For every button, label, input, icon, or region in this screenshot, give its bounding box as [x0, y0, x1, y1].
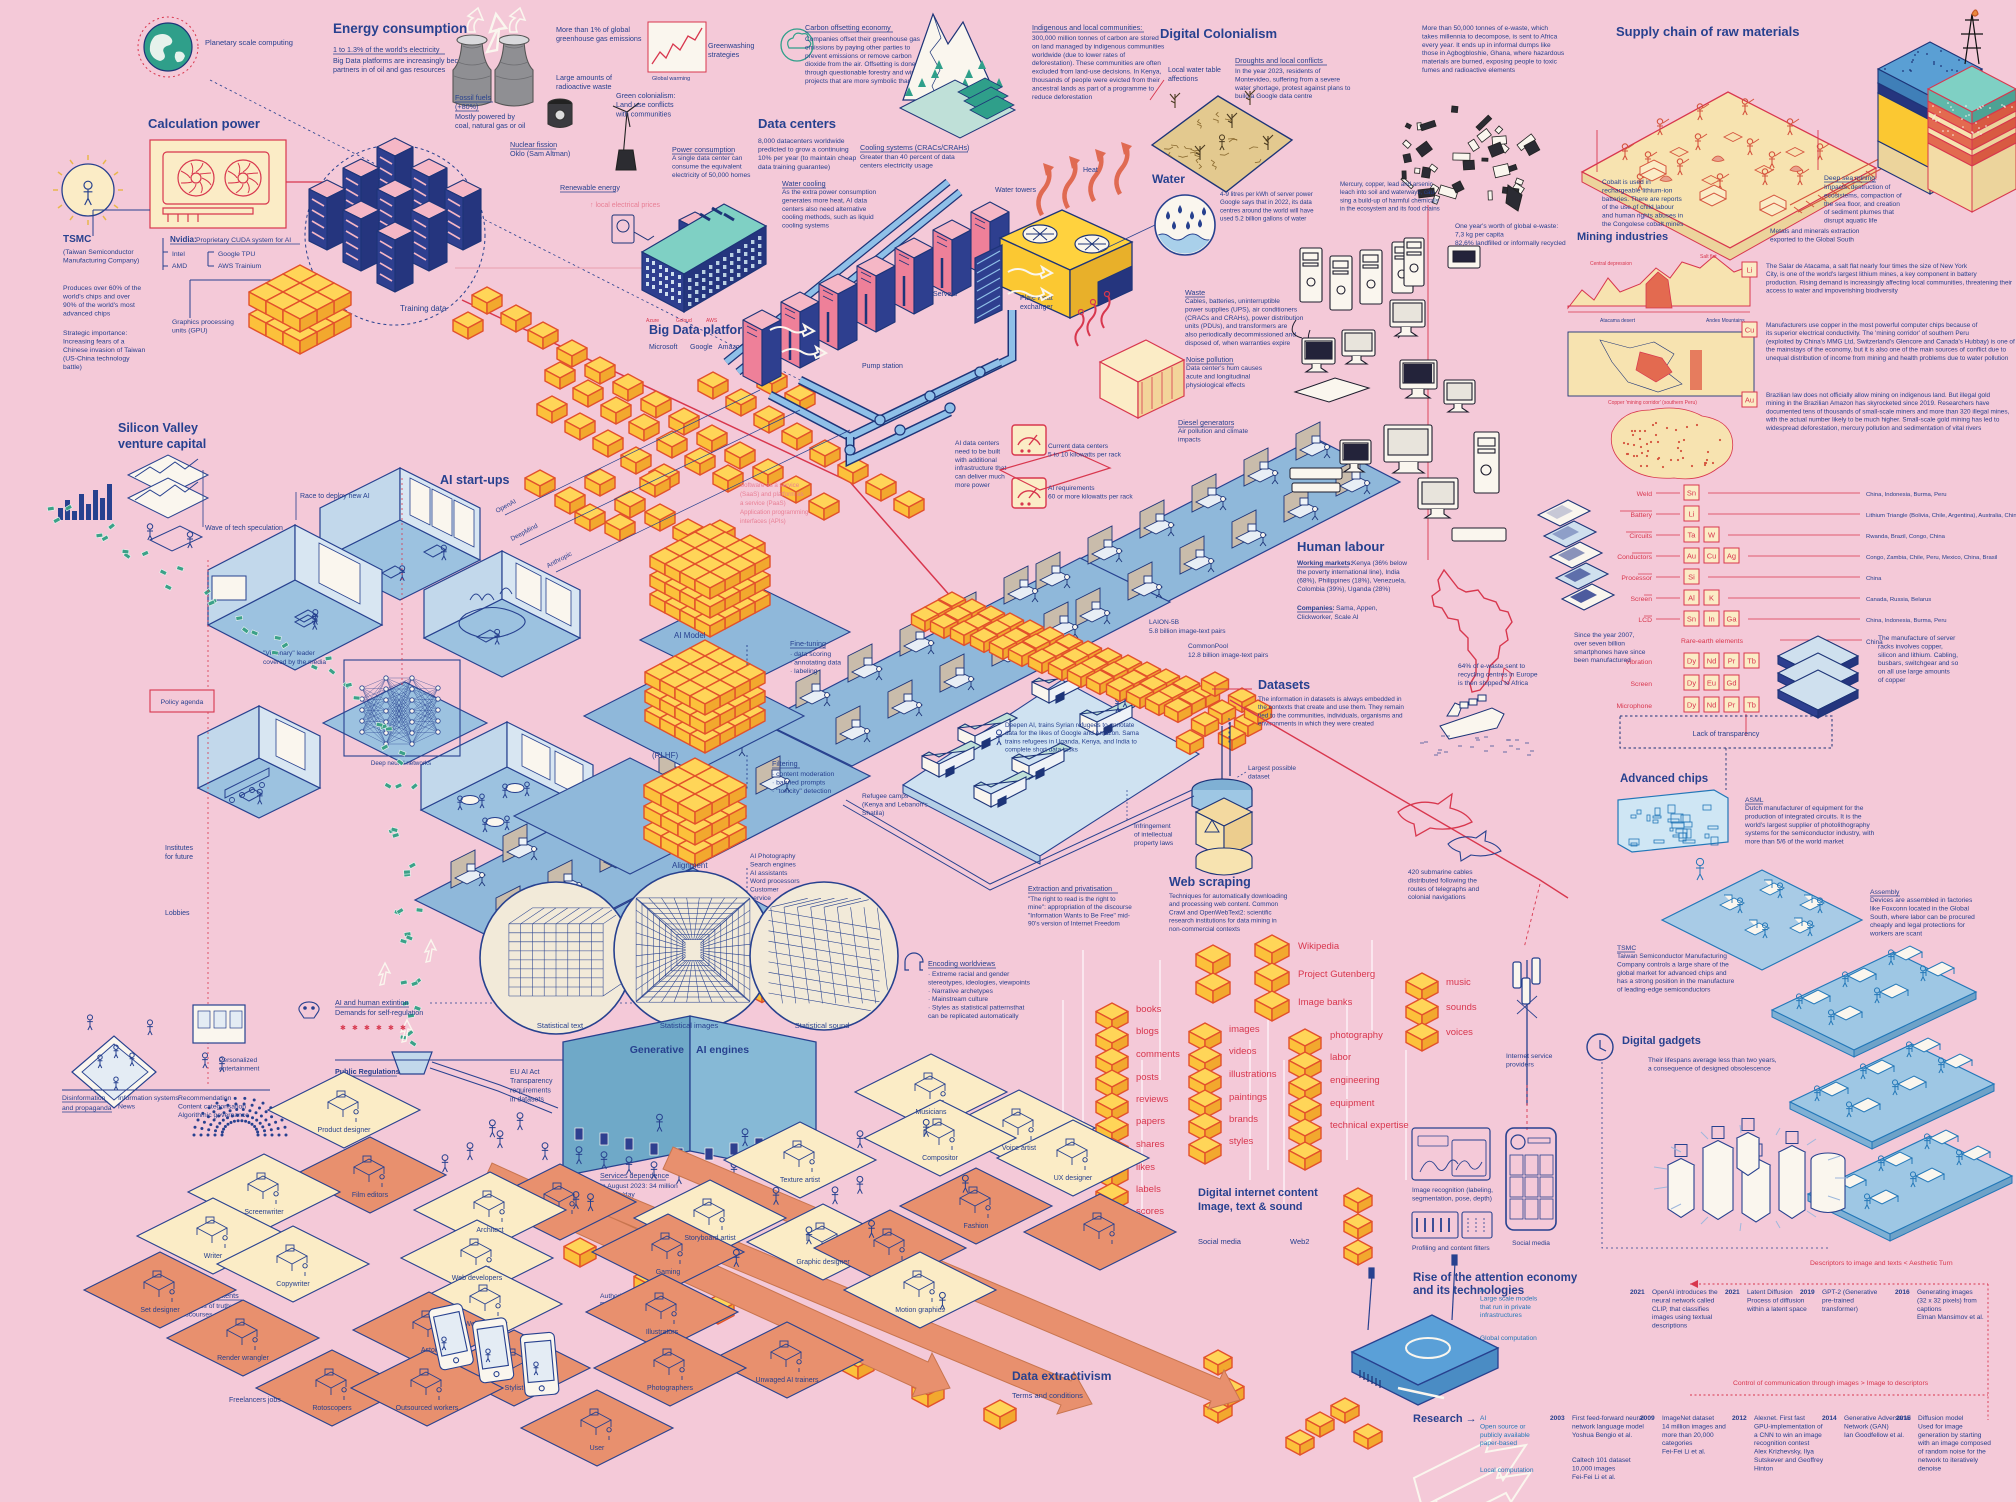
svg-text:non-commercial contexts: non-commercial contexts [1169, 926, 1240, 933]
svg-text:Mining industries: Mining industries [1577, 231, 1668, 243]
svg-text:Sn: Sn [1687, 489, 1696, 498]
svg-text:Musicians: Musicians [915, 1109, 947, 1116]
svg-text:City, is one of the world's la: City, is one of the world's largest lith… [1766, 271, 1977, 278]
svg-text:Image, text & sound: Image, text & sound [1198, 1201, 1303, 1213]
svg-text:Social media: Social media [1512, 1240, 1550, 1247]
svg-text:data training guarantee): data training guarantee) [758, 164, 830, 171]
svg-text:disrupt aquatic life: disrupt aquatic life [1824, 218, 1877, 225]
svg-text:covered by the media: covered by the media [263, 659, 326, 666]
svg-text:a CNN to win an image: a CNN to win an image [1754, 1432, 1822, 1439]
svg-text:Elman Mansimov et al.: Elman Mansimov et al. [1917, 1314, 1984, 1321]
svg-text:world's chips and over: world's chips and over [62, 294, 131, 301]
svg-text:paintings: paintings [1229, 1092, 1267, 1103]
svg-text:of copper: of copper [1878, 677, 1906, 684]
svg-text:✱: ✱ [376, 1024, 382, 1032]
svg-text:8,000 datacenters worldwide: 8,000 datacenters worldwide [758, 138, 845, 145]
svg-text:cooling systems: cooling systems [782, 223, 830, 230]
svg-text:with additional: with additional [954, 457, 997, 464]
svg-text:Render wrangler: Render wrangler [217, 1355, 269, 1362]
svg-text:Land use conflicts: Land use conflicts [616, 100, 674, 109]
svg-text:production. Rising demand is i: production. Rising demand is increasingl… [1766, 279, 2013, 286]
svg-text:Largest possible: Largest possible [1248, 765, 1296, 772]
svg-text:Refugee camps: Refugee camps [862, 793, 909, 800]
svg-text:and propaganda: and propaganda [62, 1105, 112, 1112]
svg-text:Compositor: Compositor [922, 1155, 958, 1162]
svg-text:✱: ✱ [340, 1024, 346, 1032]
svg-text:can deliver much: can deliver much [955, 474, 1005, 481]
svg-text:2019: 2019 [1800, 1289, 1815, 1296]
svg-text:posts: posts [1136, 1072, 1159, 1083]
svg-text:network to iteratively: network to iteratively [1918, 1457, 1979, 1464]
svg-text:Web developers: Web developers [452, 1275, 503, 1282]
svg-text:every year. It ends up in info: every year. It ends up in informal dumps… [1422, 42, 1551, 49]
svg-text:Recommendation: Recommendation [178, 1095, 231, 1102]
svg-text:China, Indonesia, Burma, Peru: China, Indonesia, Burma, Peru [1866, 492, 1947, 498]
svg-text:that run in private: that run in private [1480, 1304, 1531, 1311]
svg-text:Nuclear fission: Nuclear fission [510, 140, 557, 149]
svg-text:K: K [1709, 594, 1714, 603]
svg-text:Nd: Nd [1707, 701, 1717, 710]
svg-text:Techniques for automatically d: Techniques for automatically downloading [1169, 893, 1288, 900]
svg-text:Image recognition (labeling,: Image recognition (labeling, [1412, 1187, 1493, 1194]
svg-text:Rare-earth elements: Rare-earth elements [1681, 638, 1744, 645]
svg-text:Google TPU: Google TPU [218, 251, 255, 258]
svg-text:(Kenya and Lebanon's: (Kenya and Lebanon's [862, 801, 928, 808]
svg-text:Terms and conditions: Terms and conditions [1012, 1391, 1083, 1400]
svg-text:64% of e-waste sent to: 64% of e-waste sent to [1458, 663, 1525, 670]
svg-text:✱: ✱ [352, 1024, 358, 1032]
svg-text:(exploited by China's MMG Ltd,: (exploited by China's MMG Ltd, Switzerla… [1766, 338, 2015, 345]
svg-text:silicon and lithium. Cabling,: silicon and lithium. Cabling, [1878, 652, 1958, 659]
svg-text:Companies offset their greenho: Companies offset their greenhouse gas [805, 36, 921, 43]
svg-text:Alex Krizhevsky, Ilya: Alex Krizhevsky, Ilya [1754, 1449, 1814, 1456]
svg-text:4-9 litres per kWh of server p: 4-9 litres per kWh of server power [1220, 191, 1313, 198]
svg-text:through questionable forestry: through questionable forestry and wind [805, 70, 919, 77]
svg-text:Web scraping: Web scraping [1169, 875, 1251, 889]
svg-text:battle): battle) [63, 364, 82, 371]
svg-text:centers electricity usage: centers electricity usage [860, 163, 933, 170]
svg-text:· banned prompts: · banned prompts [772, 780, 826, 787]
svg-text:Set designer: Set designer [140, 1307, 180, 1314]
svg-text:transformer): transformer) [1822, 1306, 1858, 1313]
svg-text:Fei-Fei Li et al.: Fei-Fei Li et al. [1662, 1449, 1706, 1456]
svg-text:South, where labor can be proc: South, where labor can be procured [1870, 914, 1975, 921]
svg-text:on all use large amounts: on all use large amounts [1878, 669, 1951, 676]
svg-text:has a strong position in the m: has a strong position in the manufacture [1617, 978, 1735, 985]
svg-text:descriptions: descriptions [1652, 1323, 1688, 1330]
svg-text:2003: 2003 [1550, 1415, 1565, 1422]
svg-text:prevent emissions or remove ca: prevent emissions or remove carbon [805, 53, 912, 60]
svg-text:stereotypes, ideologies, viewp: stereotypes, ideologies, viewpoints [928, 979, 1031, 986]
svg-text:access to water and impoverish: access to water and impoverishing biodiv… [1766, 288, 1899, 295]
svg-text:Screenwriter: Screenwriter [244, 1209, 284, 1216]
svg-text:Open source or: Open source or [1480, 1423, 1526, 1430]
svg-text:power supplies (UPS), air cond: power supplies (UPS), air conditioners [1185, 306, 1298, 313]
svg-text:in datasets: in datasets [510, 1097, 544, 1104]
svg-text:Greater than 40 percent of dat: Greater than 40 percent of data [860, 154, 955, 161]
svg-text:GPT-2 (Generative: GPT-2 (Generative [1822, 1289, 1878, 1296]
svg-text:"The right to read is the righ: "The right to read is the right to [1028, 896, 1116, 903]
svg-text:batteries. There are reports: batteries. There are reports [1602, 196, 1682, 203]
svg-text:Proprietary CUDA system for AI: Proprietary CUDA system for AI [196, 237, 291, 244]
svg-text:Web2: Web2 [1290, 1237, 1309, 1246]
svg-text:leach into soil and waterways,: leach into soil and waterways, cau- [1340, 189, 1436, 196]
svg-text:Texture artist: Texture artist [780, 1177, 820, 1184]
svg-text:Oklo (Sam Altman): Oklo (Sam Altman) [510, 149, 570, 158]
svg-text:fumes and radioactive elements: fumes and radioactive elements [1422, 67, 1516, 74]
svg-text:Central depression: Central depression [1590, 261, 1632, 267]
svg-text:Writer: Writer [204, 1253, 223, 1260]
svg-text:Calculation power: Calculation power [148, 116, 260, 131]
svg-text:been manufactured: been manufactured [1574, 657, 1631, 664]
svg-text:· Styles as statistical patter: · Styles as statistical patternsthat [928, 1005, 1025, 1012]
svg-text:Crawl and OpenWebText2: scient: Crawl and OpenWebText2: scientific [1169, 909, 1272, 916]
svg-text:generation by starting: generation by starting [1918, 1432, 1982, 1439]
svg-text:Heat: Heat [1083, 167, 1098, 174]
svg-text:thousands of people were evict: thousands of people were evicted from th… [1032, 77, 1161, 84]
svg-text:Sutskever and Geoffrey: Sutskever and Geoffrey [1754, 1457, 1824, 1464]
svg-text:providers: providers [1506, 1062, 1535, 1069]
svg-text:Pr: Pr [1728, 701, 1736, 710]
svg-text:Research →: Research → [1413, 1413, 1477, 1425]
svg-text:CommonPool: CommonPool [1188, 643, 1228, 650]
svg-text:Caltech 101 dataset: Caltech 101 dataset [1572, 1457, 1631, 1464]
svg-text:90's version of Internet Freed: 90's version of Internet Freedom [1028, 921, 1120, 928]
svg-text:Cooling systems (CRACs/CRAHs): Cooling systems (CRACs/CRAHs) [860, 143, 969, 152]
svg-text:Ag: Ag [1727, 552, 1736, 561]
svg-text:dataset: dataset [1248, 773, 1270, 780]
svg-text:Green colonialism:: Green colonialism: [616, 91, 676, 100]
svg-text:infrastructure that: infrastructure that [955, 465, 1006, 472]
svg-text:Deepen AI, trains Syrian refug: Deepen AI, trains Syrian refugees to ann… [1005, 722, 1135, 729]
svg-text:more than 20,000: more than 20,000 [1662, 1432, 1714, 1439]
svg-text:a service (PaaS): a service (PaaS) [740, 500, 786, 507]
svg-text:production of integrated circu: production of integrated circuits. It is… [1745, 813, 1862, 820]
svg-text:Institutes: Institutes [165, 845, 194, 852]
svg-text:Power consumption: Power consumption [672, 145, 735, 154]
svg-text:Photographers: Photographers [647, 1385, 693, 1392]
svg-text:ASML: ASML [1745, 797, 1764, 804]
svg-text:brands: brands [1229, 1114, 1258, 1125]
svg-text:Fei-Fei Li et al.: Fei-Fei Li et al. [1572, 1474, 1616, 1481]
svg-text:More than 50,000 tonnes of e-w: More than 50,000 tonnes of e-waste, whic… [1422, 25, 1548, 32]
svg-text:Motion graphics: Motion graphics [895, 1307, 945, 1314]
svg-text:Statistical images: Statistical images [660, 1021, 719, 1030]
svg-text:2015: 2015 [1896, 1415, 1911, 1422]
svg-text:Assembly: Assembly [1870, 889, 1900, 896]
svg-text:and processing web content. Co: and processing web content. Common [1169, 901, 1279, 908]
svg-text:can be replicated automaticall: can be replicated automatically [928, 1013, 1019, 1020]
svg-text:consume the equivalent: consume the equivalent [672, 163, 742, 170]
svg-text:Digital Colonialism: Digital Colonialism [1160, 26, 1277, 41]
svg-text:racks involves copper,: racks involves copper, [1878, 643, 1943, 650]
svg-text:Microsoft: Microsoft [649, 344, 677, 351]
svg-text:Digital gadgets: Digital gadgets [1622, 1035, 1701, 1047]
svg-text:used 5.2 billion gallons of wa: used 5.2 billion gallons of water [1220, 216, 1306, 223]
svg-text:(68%), Philippines (18%), Vene: (68%), Philippines (18%), Venezuela, [1297, 577, 1406, 584]
svg-text:AWS Trainium: AWS Trainium [218, 263, 262, 270]
svg-text:(+80%): (+80%) [455, 102, 478, 111]
svg-text:Screen: Screen [1630, 681, 1652, 688]
svg-text:Local computation: Local computation [1480, 1467, 1534, 1474]
svg-text:ancestral lands as part of a p: ancestral lands as part of a programme t… [1032, 85, 1154, 92]
svg-text:Cobalt is used in: Cobalt is used in [1602, 179, 1651, 186]
svg-text:Pump station: Pump station [862, 363, 903, 370]
svg-text:images using textual: images using textual [1652, 1314, 1713, 1321]
svg-text:emissions by paying other part: emissions by paying other parties to [805, 44, 911, 51]
svg-text:disposed of, when warranties e: disposed of, when warranties expire [1185, 340, 1291, 347]
svg-text:Lobbies: Lobbies [165, 910, 190, 917]
svg-text:Internet service: Internet service [1506, 1053, 1553, 1060]
svg-text:Water cooling: Water cooling [782, 179, 826, 188]
svg-text:sing a build-up of harmful che: sing a build-up of harmful chemicals [1340, 197, 1439, 204]
svg-text:Graphics processing: Graphics processing [172, 319, 234, 326]
svg-text:In the year 2023, residents of: In the year 2023, residents of [1235, 68, 1321, 75]
svg-text:Generative: Generative [630, 1044, 684, 1056]
svg-text:Copper 'mining corridor' (sout: Copper 'mining corridor' (southern Peru) [1608, 400, 1697, 406]
svg-text:Google: Google [690, 344, 713, 351]
svg-text:Their lifespans average less t: Their lifespans average less than two ye… [1648, 1057, 1777, 1064]
svg-text:· content moderation: · content moderation [772, 771, 835, 778]
svg-text:the poverty international line: the poverty international line), India [1297, 569, 1400, 576]
svg-text:more than 5/6 of the world mar: more than 5/6 of the world market [1745, 839, 1844, 846]
svg-text:In: In [1708, 615, 1714, 624]
svg-text:greenhouse gas emissions: greenhouse gas emissions [556, 34, 642, 43]
svg-text:300,000 million tonnes of carb: 300,000 million tonnes of carbon are sto… [1032, 35, 1159, 42]
svg-text:(RLHF): (RLHF) [652, 751, 679, 760]
svg-text:Cables, batteries, uninterrupt: Cables, batteries, uninterruptible [1185, 298, 1280, 305]
svg-text:China: China [1866, 576, 1882, 582]
svg-text:Social media: Social media [1198, 1237, 1242, 1246]
svg-text:Stylist: Stylist [505, 1385, 524, 1392]
svg-text:videos: videos [1229, 1046, 1257, 1057]
svg-text:Infringement: Infringement [1134, 823, 1171, 830]
svg-text:Canada, Russia, Belarus: Canada, Russia, Belarus [1866, 597, 1931, 603]
svg-text:Strategic importance:: Strategic importance: [63, 330, 127, 337]
svg-text:Manufacturing Company): Manufacturing Company) [63, 258, 139, 265]
svg-text:acute and longitudinal: acute and longitudinal [1186, 373, 1251, 380]
svg-text:also periodically decommission: also periodically decommissioned and [1185, 332, 1296, 339]
svg-text:is then shipped to Africa: is then shipped to Africa [1458, 680, 1528, 687]
svg-text:the sea floor, and creation: the sea floor, and creation [1824, 201, 1900, 208]
svg-text:The manufacture of server: The manufacture of server [1878, 635, 1956, 642]
svg-text:2014: 2014 [1822, 1415, 1837, 1422]
svg-text:Graphic designer: Graphic designer [796, 1259, 850, 1266]
svg-text:photography: photography [1330, 1030, 1383, 1041]
svg-text:Project Gutenberg: Project Gutenberg [1298, 969, 1375, 980]
svg-text:tied to the communities, indiv: tied to the communities, individuals, or… [1258, 712, 1403, 719]
svg-text:2012: 2012 [1732, 1415, 1747, 1422]
svg-text:Nd: Nd [1707, 657, 1717, 666]
svg-text:colonial navigations: colonial navigations [1408, 894, 1466, 901]
svg-text:Application programming: Application programming [740, 509, 809, 516]
svg-text:for future: for future [165, 854, 193, 861]
svg-text:Company controls a large share: Company controls a large share of the [1617, 961, 1729, 968]
svg-text:centres around the world will: centres around the world will have [1220, 207, 1314, 214]
svg-text:Azure: Azure [646, 318, 659, 324]
svg-text:User: User [590, 1445, 605, 1452]
svg-text:the contexts that create and u: the contexts that create and use them. T… [1258, 704, 1404, 711]
svg-text:Alignment: Alignment [672, 861, 708, 870]
svg-text:Personalized: Personalized [219, 1057, 257, 1064]
svg-text:60 or more kilowatts per rack: 60 or more kilowatts per rack [1048, 493, 1133, 500]
svg-text:within a latent space: within a latent space [1746, 1306, 1807, 1313]
svg-text:10,000 images: 10,000 images [1572, 1465, 1616, 1472]
svg-text:comments: comments [1136, 1049, 1180, 1060]
svg-text:Renewable energy: Renewable energy [560, 183, 620, 192]
svg-text:ImageNet dataset: ImageNet dataset [1662, 1415, 1714, 1422]
svg-text:over seven billion: over seven billion [1574, 640, 1625, 647]
svg-text:W: W [1708, 531, 1716, 540]
svg-text:unequal distribution of income: unequal distribution of income from mini… [1766, 355, 2009, 362]
svg-text:partners in of oil and gas res: partners in of oil and gas resources [333, 65, 446, 74]
svg-text:property laws: property laws [1134, 840, 1174, 847]
svg-text:Product designer: Product designer [318, 1127, 372, 1134]
svg-text:global market for advanced chi: global market for advanced chips and [1617, 970, 1727, 977]
svg-text:One year's worth of global e-w: One year's worth of global e-waste: [1455, 223, 1558, 230]
svg-text:Processor: Processor [1621, 575, 1652, 582]
svg-text:Mostly powered by: Mostly powered by [455, 112, 515, 121]
svg-text:Large amounts of: Large amounts of [556, 73, 612, 82]
svg-text:infrastructures: infrastructures [1480, 1312, 1522, 1319]
svg-text:deforestation). These communit: deforestation). These communities are of… [1032, 60, 1161, 67]
svg-text:First feed-forward neural: First feed-forward neural [1572, 1415, 1644, 1422]
svg-text:Metals and minerals extraction: Metals and minerals extraction [1770, 228, 1860, 235]
svg-text:Services dependence: Services dependence [600, 1171, 669, 1180]
svg-text:Servers: Servers [933, 291, 958, 298]
svg-text:Disinformation: Disinformation [62, 1095, 106, 1102]
svg-text:Yoshua Bengio et al.: Yoshua Bengio et al. [1572, 1432, 1632, 1439]
svg-text:Transparency: Transparency [510, 1078, 553, 1085]
svg-text:Rise of the attention economy: Rise of the attention economy [1413, 1272, 1578, 1284]
svg-text:Devices are assembled in facto: Devices are assembled in factories [1870, 897, 1973, 904]
svg-text:Circuits: Circuits [1629, 533, 1652, 540]
svg-text:UX designer: UX designer [1054, 1175, 1093, 1182]
svg-text:"Information Wants to Be Free": "Information Wants to Be Free" mid- [1028, 912, 1130, 919]
svg-text:2016: 2016 [1895, 1289, 1910, 1296]
svg-text:interfaces (APIs): interfaces (APIs) [740, 518, 786, 525]
svg-text:with communities: with communities [615, 109, 672, 118]
svg-text:equipment: equipment [1330, 1098, 1375, 1109]
svg-text:Screen: Screen [1630, 596, 1652, 603]
svg-text:AI Model: AI Model [674, 631, 706, 640]
svg-text:Greenwashing: Greenwashing [708, 41, 754, 50]
svg-text:Human labour: Human labour [1297, 539, 1384, 554]
svg-text:Gaming: Gaming [656, 1269, 681, 1276]
svg-text:Wave of tech speculation: Wave of tech speculation [205, 525, 283, 532]
svg-text:Architect: Architect [476, 1227, 503, 1234]
svg-text:pre-trained: pre-trained [1822, 1297, 1854, 1304]
svg-text:cooling methods, such as liqui: cooling methods, such as liquid [782, 214, 874, 221]
svg-text:EU AI Act: EU AI Act [510, 1069, 540, 1076]
svg-text:Fine-tuning: Fine-tuning [790, 639, 826, 648]
svg-text:busbars, switchgear and so: busbars, switchgear and so [1878, 660, 1959, 667]
svg-text:widespread deforestation, merc: widespread deforestation, mercury pollut… [1765, 425, 1981, 432]
svg-text:Manufacturers use copper in th: Manufacturers use copper in the most pow… [1766, 322, 1978, 329]
svg-text:2009: 2009 [1640, 1415, 1655, 1422]
svg-text:90% of the world's most: 90% of the world's most [63, 302, 135, 309]
svg-text:Diffusion model: Diffusion model [1918, 1415, 1964, 1422]
svg-text:advanced chips: advanced chips [63, 311, 111, 318]
svg-text:Profiling and content filters: Profiling and content filters [1412, 1245, 1490, 1252]
svg-text:routes of telegraphs and: routes of telegraphs and [1408, 886, 1479, 893]
svg-text:a consequence of designed obso: a consequence of designed obsolescence [1648, 1065, 1771, 1072]
svg-text:Dy: Dy [1687, 679, 1696, 688]
svg-text:12.8 billion image-text pairs: 12.8 billion image-text pairs [1188, 652, 1269, 659]
svg-text:with an image composed: with an image composed [1917, 1440, 1991, 1447]
svg-text:Kenya (36% below: Kenya (36% below [1352, 560, 1407, 567]
svg-text:Silicon Valley: Silicon Valley [118, 421, 198, 435]
svg-text:↑ local electrical prices: ↑ local electrical prices [590, 202, 661, 209]
svg-text:Supply chain of raw materials: Supply chain of raw materials [1616, 24, 1800, 39]
svg-text:LAION-5B: LAION-5B [1149, 619, 1180, 626]
svg-text:and human rights abuses in: and human rights abuses in [1602, 213, 1683, 220]
svg-text:Image banks: Image banks [1298, 997, 1353, 1008]
svg-text:· Extreme racial and gender: · Extreme racial and gender [928, 971, 1010, 978]
svg-text:The Salar de Atacama, a salt f: The Salar de Atacama, a salt flat nearly… [1766, 263, 1968, 270]
svg-text:recycling centres in Europe: recycling centres in Europe [1458, 671, 1538, 678]
svg-text:impacts: impacts [1178, 436, 1201, 443]
svg-text:Carbon offsetting economy: Carbon offsetting economy [805, 23, 891, 32]
svg-text:Water: Water [1152, 172, 1185, 186]
svg-text:Used for image: Used for image [1918, 1423, 1963, 1430]
svg-text:420 submarine cables: 420 submarine cables [1408, 869, 1473, 876]
svg-text:2021: 2021 [1725, 1289, 1740, 1296]
svg-text:books: books [1136, 1004, 1162, 1015]
svg-text:5.8 billion image-text pairs: 5.8 billion image-text pairs [1149, 628, 1226, 635]
svg-text:✱: ✱ [400, 1024, 406, 1032]
svg-text:Search engines: Search engines [750, 861, 797, 868]
svg-text:segmentation, pose, depth): segmentation, pose, depth) [1412, 1195, 1492, 1202]
svg-text:publicly available: publicly available [1480, 1432, 1530, 1439]
svg-text:Big Data platforms are increas: Big Data platforms are increasingly beco… [333, 56, 478, 65]
svg-text:Gcloud: Gcloud [676, 318, 692, 324]
svg-text:Sn: Sn [1687, 615, 1696, 624]
svg-text:of the use of child labour: of the use of child labour [1602, 204, 1675, 211]
svg-text:mine": appropriation of the di: mine": appropriation of the discourse [1028, 904, 1132, 911]
svg-text:AI: AI [1480, 1415, 1486, 1422]
svg-text:Lithium Triangle (Bolivia, Chi: Lithium Triangle (Bolivia, Chile, Argent… [1866, 513, 2016, 519]
svg-text:Diesel generators: Diesel generators [1178, 418, 1235, 427]
svg-text:Conductors: Conductors [1617, 554, 1652, 561]
svg-text:captions: captions [1917, 1306, 1942, 1313]
svg-text:the Congolese cobalt mines: the Congolese cobalt mines [1602, 221, 1684, 228]
svg-text:Al: Al [1688, 594, 1695, 603]
svg-text:Software as a service: Software as a service [740, 482, 800, 489]
svg-text:generates more heat, AI data: generates more heat, AI data [782, 197, 867, 204]
svg-text:takes millennia to decompose,: takes millennia to decompose, is sent to… [1422, 33, 1558, 40]
svg-text:its superior electrical conduc: its superior electrical conductivity. Th… [1766, 330, 1969, 337]
svg-text:blogs: blogs [1136, 1026, 1159, 1037]
svg-text:Intel: Intel [172, 251, 185, 258]
svg-text:Impacts: destruction of: Impacts: destruction of [1824, 184, 1891, 191]
svg-text:water shortage, protest agains: water shortage, protest against plans to [1234, 85, 1351, 92]
svg-text:Atacama desert: Atacama desert [1600, 318, 1636, 324]
svg-text:· labeling: · labeling [790, 668, 818, 675]
svg-text:Clickworker, Scale AI: Clickworker, Scale AI [1297, 614, 1359, 621]
svg-text:complete short data tasks: complete short data tasks [1005, 747, 1078, 754]
svg-text:Fossil fuels: Fossil fuels [455, 93, 491, 102]
svg-text:Current data centers: Current data centers [1048, 443, 1109, 450]
svg-text:Andes Mountains: Andes Mountains [1706, 318, 1745, 324]
svg-text:with the actual number likely: with the actual number likely to be much… [1765, 417, 2000, 424]
svg-text:Waste: Waste [1185, 288, 1205, 297]
svg-text:Descriptors to image and texts: Descriptors to image and texts < Aesthet… [1810, 1260, 1953, 1267]
svg-text:Demands for self-regulation: Demands for self-regulation [335, 1008, 423, 1017]
svg-text:engineering: engineering [1330, 1075, 1380, 1086]
svg-text:sounds: sounds [1446, 1002, 1477, 1013]
svg-text:(SaaS) and platform as: (SaaS) and platform as [740, 491, 804, 498]
